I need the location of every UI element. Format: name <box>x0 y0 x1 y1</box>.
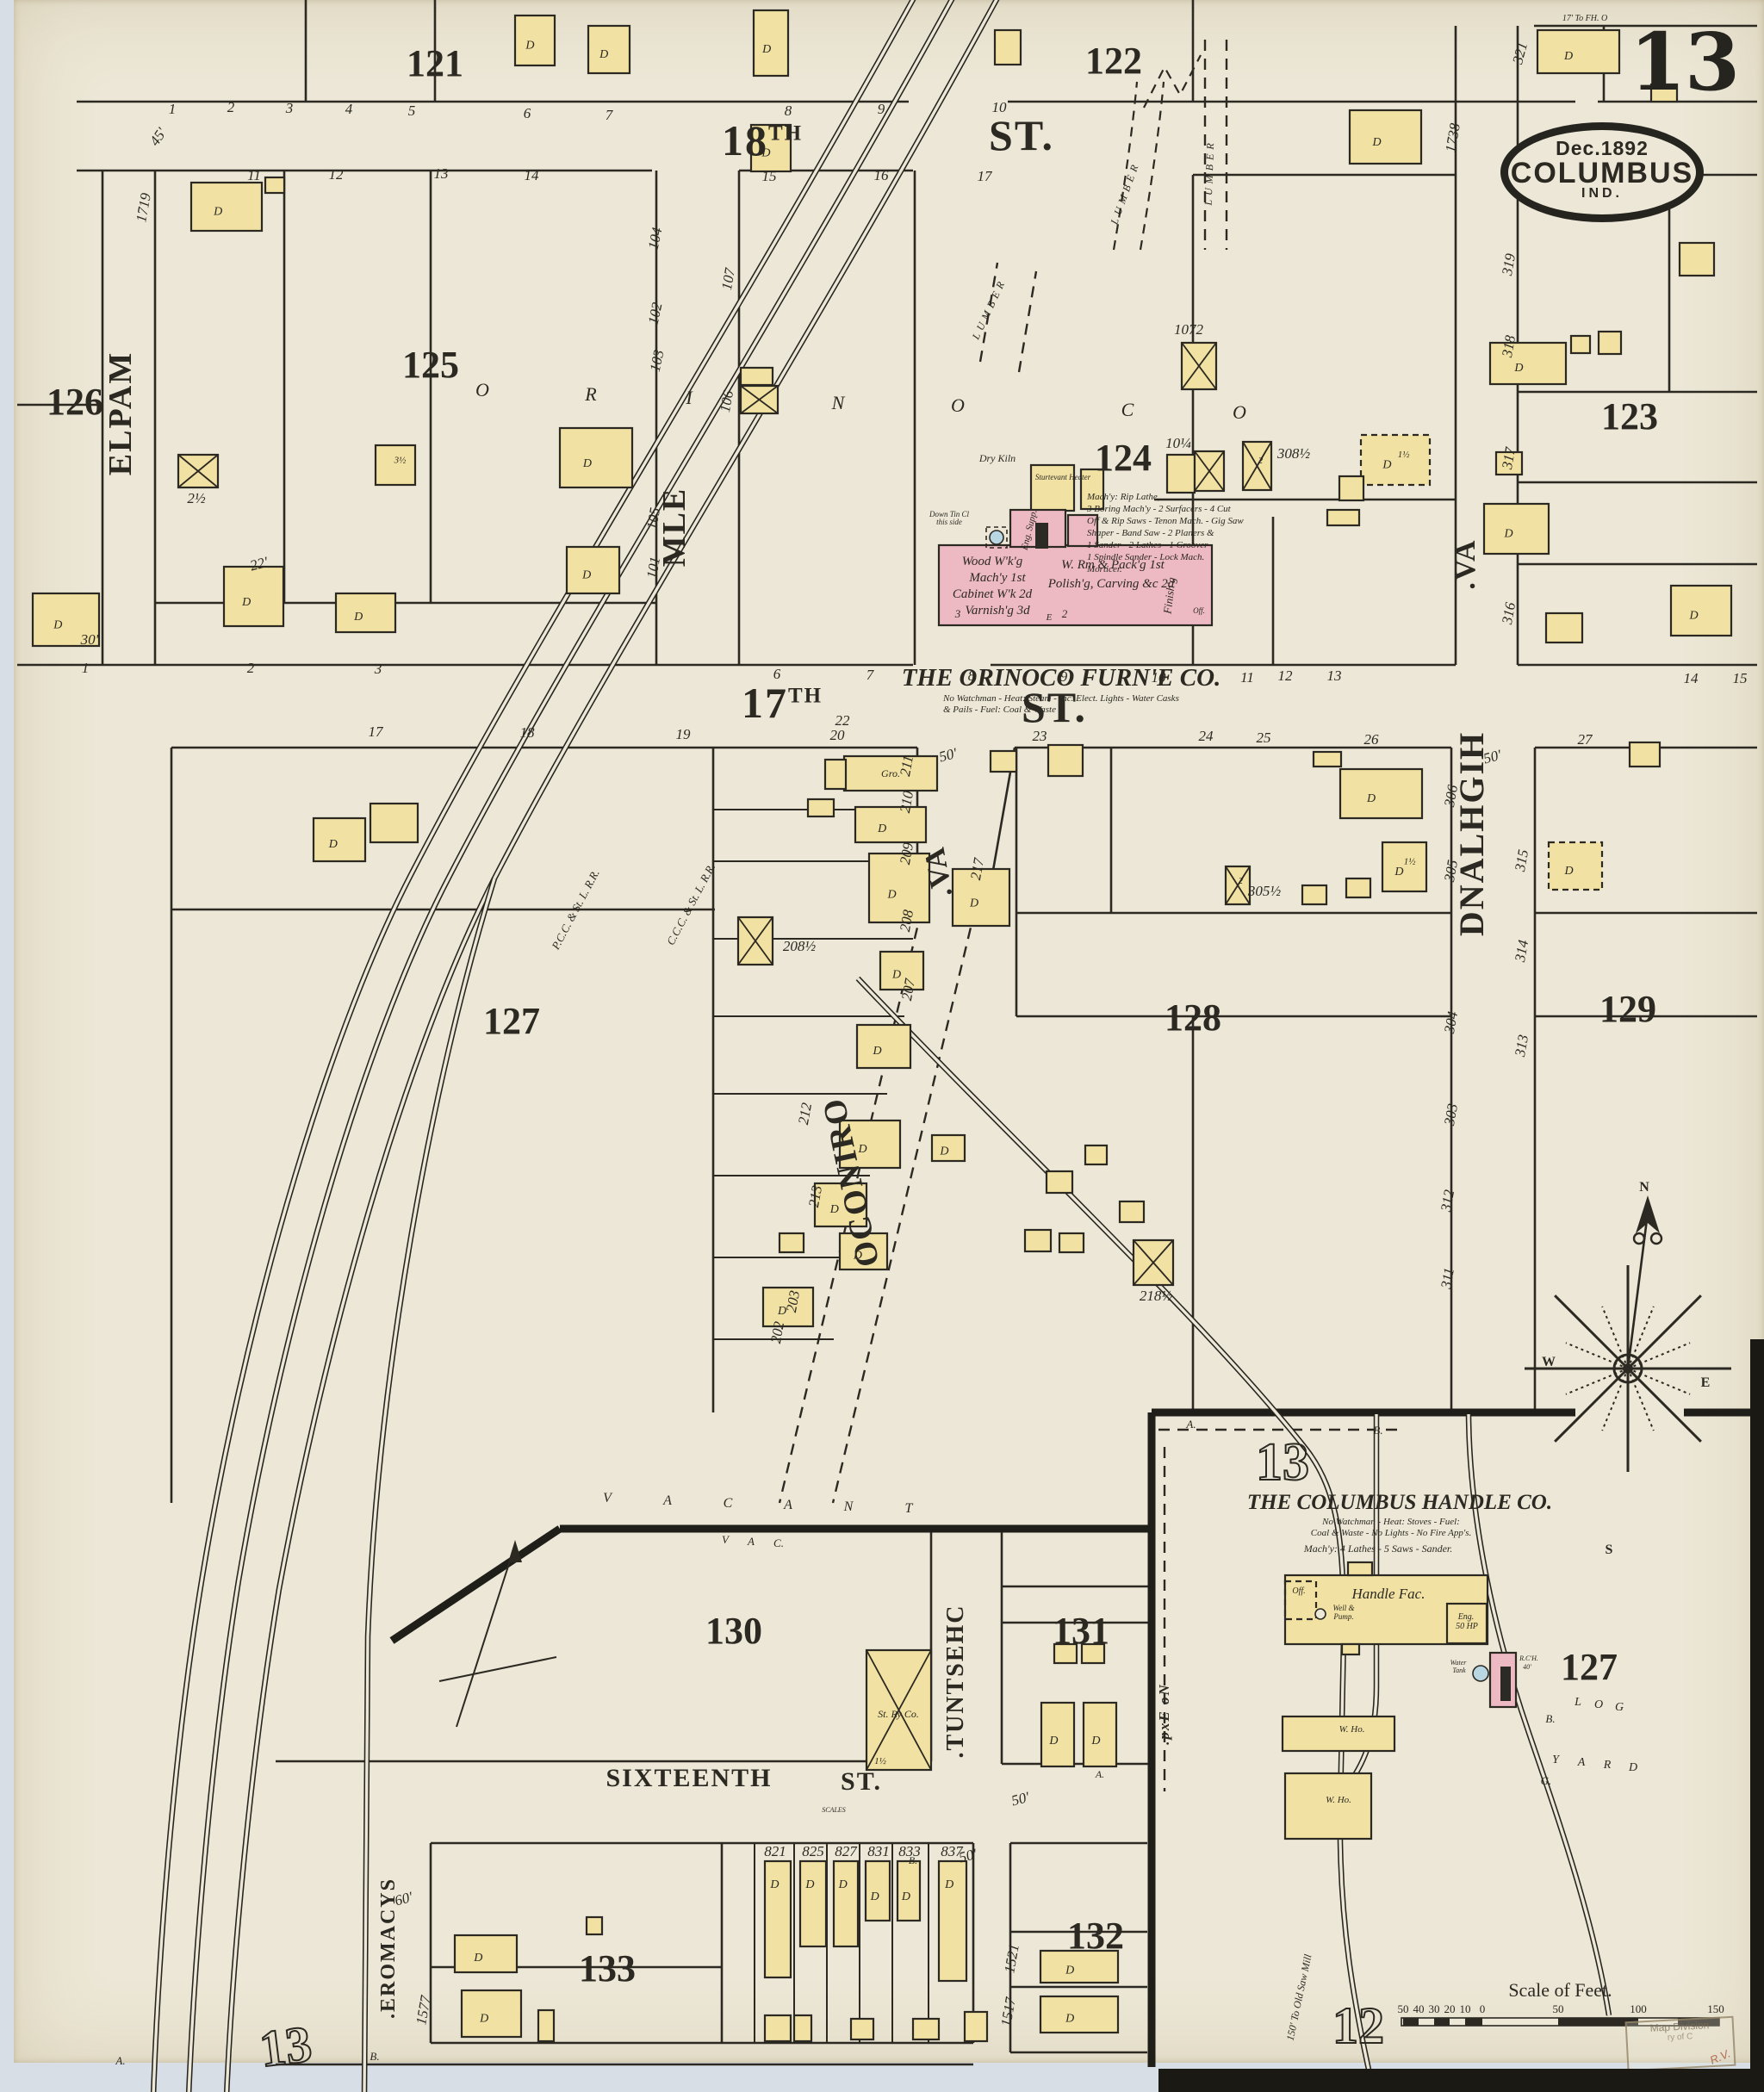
building <box>765 2015 791 2041</box>
building <box>1350 110 1421 164</box>
railroad-track <box>153 0 916 2092</box>
lot-number: 16 <box>874 167 890 183</box>
building <box>1040 1996 1118 2033</box>
block-number: 130 <box>705 1610 762 1652</box>
map-annotation: I <box>685 387 693 408</box>
lot-number: 27 <box>1578 731 1594 748</box>
lot-number: 103 <box>647 348 668 373</box>
lot-number: 303 <box>1441 1102 1461 1127</box>
lot-number: 107 <box>718 265 738 291</box>
lot-number: 831 <box>867 1843 890 1859</box>
lot-number: 1072 <box>1174 321 1204 338</box>
orinoco-room: Polish'g, Carving &c 2d <box>1047 577 1175 591</box>
lot-number: 50' <box>937 745 959 766</box>
dwelling-label: D <box>1513 362 1523 375</box>
building <box>794 2015 811 2041</box>
street-label: .VA <box>1450 538 1481 589</box>
dwelling-label: D <box>353 611 363 624</box>
compass-ray <box>1602 1369 1628 1431</box>
lot-number: 11 <box>1240 669 1254 686</box>
building <box>515 16 555 65</box>
map-annotation: A <box>747 1535 755 1548</box>
compass-ray <box>1555 1295 1628 1369</box>
lot-number: 15 <box>762 168 777 184</box>
scale-bar-segment <box>1403 2018 1419 2026</box>
street-label: ST. <box>841 1767 882 1796</box>
orinoco-machinery: Mach'y: Rip Lathe, <box>1086 492 1160 502</box>
scale-tick: 150 <box>1707 2002 1724 2015</box>
map-annotation: Pump. <box>1332 1612 1353 1621</box>
lot-number: 1 <box>169 101 177 117</box>
lot-number: 321 <box>1509 40 1531 67</box>
street-railway-label: St. Ry Co. <box>878 1708 919 1720</box>
dwelling-label: D <box>872 1045 881 1058</box>
building <box>455 1935 517 1972</box>
map-annotation: O <box>475 379 489 400</box>
building <box>855 807 926 842</box>
lot-number: 3 <box>374 661 382 677</box>
block-number: 122 <box>1085 40 1142 82</box>
lot-number: 10 <box>1152 669 1167 686</box>
map-annotation: 2 <box>1062 607 1068 620</box>
building <box>1571 336 1590 353</box>
lot-number: 12 <box>329 166 345 183</box>
map-annotation: C <box>1121 399 1134 420</box>
scale-tick: 40 <box>1413 2002 1425 2015</box>
columbus-handle-co-title: THE COLUMBUS HANDLE CO. <box>1247 1491 1552 1514</box>
building <box>1085 1145 1107 1164</box>
lot-number: 106 <box>717 388 736 413</box>
building <box>1361 435 1430 485</box>
scan-edge-right <box>1750 1339 1764 2092</box>
map-annotation: R <box>1603 1759 1612 1772</box>
adjacent-sheet-number: 13 <box>1256 1433 1309 1492</box>
lot-number: 218½ <box>1140 1288 1173 1304</box>
dwelling-label: D <box>1371 136 1381 149</box>
building <box>314 818 365 861</box>
map-annotation: B. <box>1373 1424 1382 1437</box>
building <box>800 1861 826 1946</box>
dwelling-label: D <box>328 838 338 851</box>
dwelling-label: D <box>1048 1735 1058 1747</box>
lot-number: 8 <box>785 102 792 119</box>
compass-ray <box>1555 1369 1628 1442</box>
distance-note: 150' To Old Saw Mill <box>1284 1952 1314 2041</box>
railroad-name: C.C.C. & St. L. R.R. <box>664 861 718 947</box>
lot-number: 7 <box>866 667 875 683</box>
scan-edge-bottom <box>1158 2069 1764 2092</box>
street-label: SIXTEENTH <box>606 1764 772 1792</box>
lot-number: 1738 <box>1442 121 1463 153</box>
map-annotation: Well & <box>1333 1604 1355 1612</box>
survey-tick <box>439 1657 556 1681</box>
lot-number: 50' <box>957 1846 978 1866</box>
block-number: 125 <box>402 344 459 386</box>
lot-number: 821 <box>764 1843 786 1859</box>
scales-label: SCALES <box>822 1806 846 1814</box>
lot-number: 207 <box>898 976 918 1002</box>
lot-number: 315 <box>1512 848 1531 873</box>
lot-number: 308½ <box>1276 445 1311 462</box>
dwelling-label: D <box>473 1952 482 1965</box>
dwelling-label: D <box>1366 792 1376 805</box>
dwelling-label: D <box>53 618 62 631</box>
block-number: 129 <box>1599 988 1656 1030</box>
orinoco-machinery: Off & Rip Saws - Tenon Mach. - Gig Saw <box>1087 516 1244 526</box>
compass-ray <box>1628 1343 1690 1369</box>
dwelling-label: D <box>870 1890 879 1903</box>
orinoco-machinery: Shaper - Band Saw - 2 Planers & <box>1087 528 1214 538</box>
building <box>834 1861 858 1946</box>
dwelling-label: D <box>1503 528 1512 541</box>
map-annotation: B. <box>370 2050 379 2063</box>
lot-number: 202 <box>767 1319 787 1344</box>
map-annotation: O <box>1233 401 1246 423</box>
handle-machinery: Mach'y: 4 Lathes - 5 Saws - Sander. <box>1303 1543 1453 1555</box>
building <box>741 368 773 385</box>
lot-number: 2 <box>247 660 255 676</box>
compass-north-label: N <box>1639 1180 1649 1195</box>
lot-number: 7 <box>606 107 614 123</box>
handle-note: Coal & Waste - No Lights - No Fire App's… <box>1311 1528 1472 1538</box>
block-number: 126 <box>47 381 103 423</box>
building <box>1059 1233 1084 1252</box>
dwelling-label: D <box>901 1890 910 1903</box>
dwelling-label: D <box>599 48 608 61</box>
lot-number: 10¼ <box>1165 435 1191 451</box>
block-number: 131 <box>1053 1610 1109 1652</box>
building <box>1348 1562 1372 1575</box>
railroad-track <box>189 0 954 2092</box>
handle-factory-label: Handle Fac. <box>1351 1586 1425 1602</box>
map-annotation: N <box>843 1499 854 1514</box>
compass-ray <box>1628 1369 1654 1431</box>
building-label: 1½ <box>1398 450 1410 460</box>
lot-number: 25 <box>1257 729 1271 746</box>
building <box>913 2019 939 2039</box>
street-label: ST. <box>1022 683 1087 731</box>
chimney <box>1035 523 1048 549</box>
building <box>1549 842 1602 890</box>
building <box>1630 742 1660 767</box>
building-label: W. Ho. <box>1326 1795 1351 1805</box>
building <box>191 183 262 231</box>
building-label: W. Ho. <box>1339 1724 1365 1735</box>
orinoco-room: Wood W'k'g <box>962 555 1023 568</box>
building-label: 2 <box>1258 456 1264 466</box>
well <box>1315 1609 1326 1619</box>
lot-number: 24 <box>1199 728 1214 744</box>
lot-number: 305½ <box>1247 883 1282 899</box>
lot-number: 2 <box>227 99 235 115</box>
orinoco-room: Off. <box>1193 606 1205 615</box>
map-annotation: this side <box>936 518 962 526</box>
lot-number: 1719 <box>133 191 154 223</box>
orinoco-room: Varnish'g 3d <box>965 604 1030 618</box>
building <box>965 2012 987 2041</box>
compass-needle-fleur <box>1634 1233 1644 1244</box>
map-annotation: C <box>724 1496 733 1511</box>
map-annotation: R <box>584 383 597 405</box>
lumber-label: LUMBER <box>1202 139 1217 207</box>
map-annotation: V <box>722 1533 730 1546</box>
street-label: ELPAM <box>102 351 139 475</box>
compass-needle-fleur <box>1636 1195 1660 1233</box>
dwelling-label: D <box>969 897 978 909</box>
street-label: .pxE oN <box>1156 1683 1172 1745</box>
building <box>1167 455 1195 493</box>
orinoco-room: Mach'y 1st <box>968 571 1026 585</box>
building <box>857 1025 910 1068</box>
dwelling-label: D <box>887 888 897 901</box>
water-cask <box>990 531 1003 544</box>
dwelling-label: D <box>1382 459 1391 472</box>
building <box>780 1233 804 1252</box>
map-annotation: Tank <box>1452 1667 1466 1674</box>
dwelling-label: D <box>1563 50 1573 63</box>
dwelling-label: D <box>1065 1964 1074 1977</box>
dwelling-label: D <box>939 1145 948 1158</box>
map-annotation: A. <box>1185 1418 1196 1431</box>
building <box>1599 332 1621 354</box>
lot-number: 8 <box>968 667 976 684</box>
lumber-label: LUMBER <box>969 276 1009 342</box>
lot-number: 11 <box>247 167 261 183</box>
lot-number: 314 <box>1512 938 1531 964</box>
building <box>224 567 283 626</box>
compass-ray <box>1566 1343 1628 1369</box>
map-annotation: O <box>1594 1698 1603 1711</box>
lot-number: 2½ <box>187 490 206 506</box>
map-annotation: G <box>1615 1701 1624 1714</box>
dwelling-label: D <box>241 596 251 609</box>
building <box>995 30 1021 65</box>
map-annotation: Water <box>1450 1659 1468 1667</box>
map-canvas: DDDDDD3½DDDDDD2D1½DDDDDDDDDDDDDD1½2DDW. … <box>0 0 1764 2092</box>
lot-number: 827 <box>835 1843 858 1859</box>
building <box>1120 1201 1144 1222</box>
block-number: 124 <box>1095 437 1152 479</box>
lot-number: 3 <box>285 100 294 116</box>
building <box>1546 613 1582 642</box>
block-number: 127 <box>1561 1646 1618 1688</box>
lot-number: 12 <box>1278 667 1294 684</box>
lot-number: 1517 <box>997 1995 1019 2027</box>
map-annotation: B. <box>1545 1712 1555 1725</box>
building-label: 1½ <box>1404 857 1416 867</box>
map-annotation: 3 <box>954 607 961 620</box>
building <box>1671 586 1731 636</box>
lot-number: 102 <box>645 301 666 326</box>
dashed-line <box>1019 271 1036 372</box>
water-tank <box>1473 1666 1488 1681</box>
compass-ray <box>1628 1369 1690 1394</box>
building <box>1346 878 1370 897</box>
dwelling-label: D <box>1394 866 1403 878</box>
map-annotation: E <box>1046 612 1053 623</box>
dwelling-label: D <box>761 43 771 56</box>
building <box>1025 1230 1051 1251</box>
lot-number: 14 <box>1684 670 1699 686</box>
map-annotation: A. <box>115 2054 125 2067</box>
building <box>1342 1644 1359 1654</box>
adjacent-sheet-number: 13 <box>257 2015 315 2078</box>
lot-number: 18 <box>520 724 536 741</box>
block-number: 127 <box>483 1000 540 1042</box>
dwelling-label: D <box>1689 610 1699 623</box>
dwelling-label: D <box>479 2012 488 2025</box>
lot-number: 208 <box>897 908 916 933</box>
scale-tick: 20 <box>1444 2002 1456 2015</box>
dwelling-label: D <box>891 969 901 982</box>
lot-number: 313 <box>1512 1034 1531 1058</box>
dwelling-label: D <box>804 1878 814 1891</box>
railroad-track <box>189 0 954 2092</box>
compass-needle-fleur <box>1651 1233 1662 1244</box>
sanborn-map-sheet: DDDDDD3½DDDDDD2D1½DDDDDDDDDDDDDD1½2DDW. … <box>0 0 1764 2092</box>
compass-ray <box>1566 1369 1628 1394</box>
building <box>567 547 619 593</box>
orinoco-room: Cabinet W'k 2d <box>953 587 1033 601</box>
building <box>560 428 632 487</box>
map-annotation: R.C'H. <box>1519 1654 1538 1662</box>
building <box>1327 510 1359 525</box>
building <box>1339 476 1363 500</box>
building <box>587 1917 602 1934</box>
scale-tick: 100 <box>1630 2002 1647 2015</box>
lot-number: 22 <box>835 712 851 729</box>
lot-number: 319 <box>1499 251 1519 277</box>
map-annotation: Eng. <box>1457 1612 1475 1622</box>
sheet-number: 13 <box>1624 16 1745 109</box>
dwelling-label: D <box>525 40 534 53</box>
orinoco-machinery: 3 Boring Mach'y - 2 Surfacers - 4 Cut <box>1086 504 1232 514</box>
lot-number: 4 <box>345 101 353 117</box>
dwelling-label: D <box>581 568 591 581</box>
building <box>1302 885 1326 904</box>
lot-number: 833 <box>898 1843 921 1859</box>
building <box>991 751 1016 772</box>
building <box>1340 769 1422 818</box>
map-annotation: A <box>1577 1756 1586 1769</box>
dwelling-label: D <box>1065 2012 1074 2025</box>
map-annotation: Off. <box>1292 1586 1305 1596</box>
map-annotation: T <box>905 1501 914 1516</box>
map-annotation: Sturtevant Heater <box>1035 473 1091 481</box>
building <box>1484 504 1549 554</box>
scale-tick: 10 <box>1460 2002 1471 2015</box>
library-stamp: Map Division ry of C R.V. <box>1625 2016 1736 2072</box>
dwelling-label: D <box>877 823 886 835</box>
orinoco-room: W. Rm & Pack'g 1st <box>1061 558 1165 572</box>
map-annotation: C. <box>773 1536 784 1549</box>
map-annotation: 50 HP <box>1456 1622 1478 1631</box>
lot-number: 15 <box>1733 670 1748 686</box>
building <box>1285 1773 1371 1839</box>
building-label: 3½ <box>394 456 407 466</box>
map-annotation: 1½ <box>874 1756 886 1766</box>
street-label: 17TH <box>742 679 823 727</box>
badge-city: COLUMBUS <box>1508 160 1696 186</box>
orinoco-machinery: 1 Sander - 2 Lathes - 1 Groover <box>1087 540 1208 550</box>
street-label: .EROMACYS <box>377 1878 400 2019</box>
building <box>588 26 630 73</box>
map-annotation: N <box>831 392 846 413</box>
scale-tick: 50 <box>1398 2002 1409 2015</box>
building <box>538 2010 554 2041</box>
dwelling-label: D <box>213 205 222 218</box>
building <box>851 2019 873 2039</box>
compass-south-label: S <box>1606 1543 1613 1557</box>
street-label: MLE <box>656 487 693 568</box>
dwelling-label: D <box>838 1878 848 1891</box>
lot-number: 30' <box>80 631 99 648</box>
lot-number: 1 <box>82 660 90 676</box>
map-annotation: O <box>951 394 965 416</box>
lot-number: 212 <box>795 1101 815 1126</box>
lot-number: 316 <box>1499 600 1519 626</box>
building <box>825 760 846 789</box>
dwelling-label: D <box>582 457 592 470</box>
lot-number: 311 <box>1438 1266 1457 1290</box>
lot-number: 14 <box>525 167 540 183</box>
lot-number: 26 <box>1364 731 1380 748</box>
lot-number: 20 <box>830 727 846 743</box>
scale-tick: 0 <box>1480 2002 1486 2015</box>
block-number: 128 <box>1165 996 1221 1039</box>
building <box>1031 465 1074 511</box>
lot-number: 19 <box>676 726 692 742</box>
dwelling-label: D <box>1563 865 1573 878</box>
building <box>265 177 284 193</box>
scale-tick: 50 <box>1553 2002 1564 2015</box>
block-number: 132 <box>1067 1915 1124 1957</box>
compass-west-label: W <box>1542 1355 1556 1369</box>
lot-number: 9 <box>878 101 885 117</box>
lot-number: 1521 <box>1001 1943 1022 1975</box>
map-annotation: L <box>1574 1696 1581 1709</box>
lot-number: 312 <box>1438 1188 1457 1214</box>
lot-number: 17 <box>978 168 994 184</box>
building <box>1048 745 1083 776</box>
building <box>370 804 418 842</box>
compass-east-label: E <box>1701 1375 1711 1390</box>
building <box>808 799 834 816</box>
building <box>1680 243 1714 276</box>
map-annotation: A. <box>1095 1768 1104 1780</box>
scale-title: Scale of Feet. <box>1508 1979 1612 2001</box>
building <box>1047 1171 1072 1193</box>
lot-number: 17 <box>369 723 385 740</box>
lot-number: 13 <box>434 165 449 182</box>
stamp-mark: R.V. <box>1708 2046 1732 2066</box>
building <box>462 1990 521 2037</box>
lot-number: 50' <box>1009 1789 1031 1810</box>
scale-bar-segment <box>1465 2018 1482 2026</box>
building <box>336 593 395 632</box>
lot-number: 104 <box>645 226 666 251</box>
dwelling-label: D <box>769 1878 779 1891</box>
compass-ray <box>1628 1295 1701 1369</box>
adjacent-sheet-number: 12 <box>1332 1997 1384 2054</box>
compass-ray <box>1602 1307 1628 1369</box>
block-number: 133 <box>579 1947 636 1990</box>
block-number: 123 <box>1601 395 1658 438</box>
distance-note: 17' To FH. O <box>1562 14 1607 23</box>
lot-number: 208½ <box>783 938 817 954</box>
dry-kiln-label: Dry Kiln <box>978 452 1016 464</box>
compass-ray <box>1628 1369 1701 1442</box>
